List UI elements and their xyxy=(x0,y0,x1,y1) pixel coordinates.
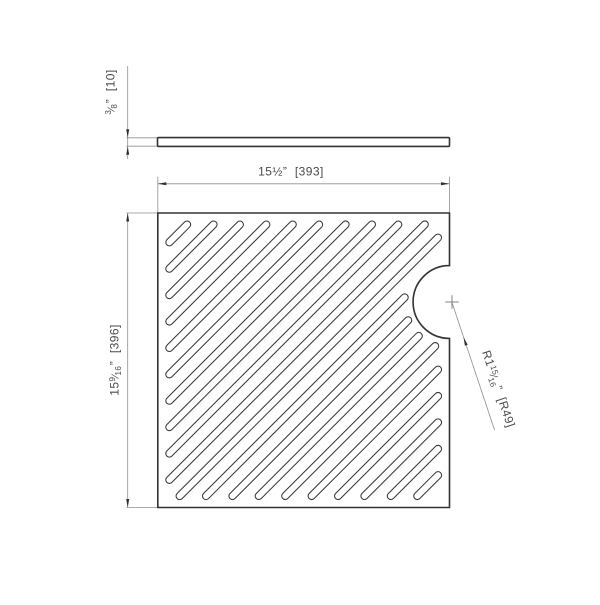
svg-text:159⁄16” [396]: 159⁄16” [396] xyxy=(108,324,124,396)
svg-text:15½” [393]: 15½” [393] xyxy=(258,164,324,178)
svg-text:3⁄8” [10]: 3⁄8” [10] xyxy=(104,69,120,114)
